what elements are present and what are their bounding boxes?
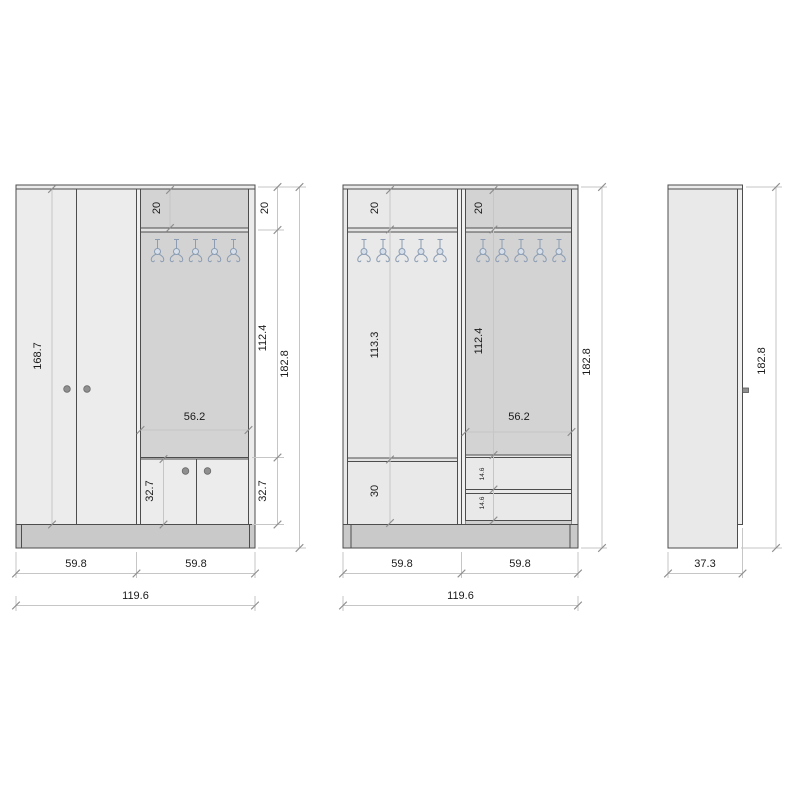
door-handle-knob <box>182 468 189 475</box>
side-panel-body <box>668 189 738 548</box>
door-handle-knob <box>204 468 211 475</box>
dimension-label: 119.6 <box>122 590 149 602</box>
door-handle-knob <box>84 386 91 393</box>
dimension-label: 14.6 <box>479 467 486 480</box>
dimension-label: 59.8 <box>509 558 530 570</box>
top-shelf-right <box>466 228 572 232</box>
dimension-label: 168.7 <box>32 342 44 370</box>
dimension-label: 112.4 <box>473 328 485 355</box>
dimension-label: 182.8 <box>581 348 593 376</box>
dimension-label: 113.3 <box>369 332 381 359</box>
technical-drawing-canvas: 168.72020112.456.232.732.7182.859.859.81… <box>0 0 800 800</box>
center-partition <box>137 189 141 548</box>
dimension-label: 30 <box>369 485 381 497</box>
door-handle-side <box>743 388 749 393</box>
lower-shelf-left <box>348 458 458 462</box>
dimension-label: 20 <box>151 202 163 214</box>
dimension-label: 59.8 <box>185 558 206 570</box>
dimension-label: 56.2 <box>184 411 205 423</box>
dimension-label: 112.4 <box>257 325 269 352</box>
dimension-label: 20 <box>259 202 271 214</box>
dimension-label: 119.6 <box>447 590 474 602</box>
dimension-label: 32.7 <box>144 480 156 501</box>
dimension-label: 14.6 <box>479 496 486 509</box>
dimension-label: 59.8 <box>65 558 86 570</box>
side-view <box>668 185 749 548</box>
wardrobe-dimension-drawing: 168.72020112.456.232.732.7182.859.859.81… <box>0 0 800 800</box>
door-handle-knob <box>64 386 71 393</box>
dimension-label: 182.8 <box>279 350 291 378</box>
dimension-label: 20 <box>369 202 381 214</box>
dimension-label: 32.7 <box>257 480 269 501</box>
under-drawer-band <box>466 521 572 525</box>
top-shelf-left <box>348 228 458 232</box>
plinth <box>16 525 255 549</box>
door-edge-strip <box>738 189 743 525</box>
dimension-label: 182.8 <box>756 347 768 375</box>
dimension-label: 59.8 <box>391 558 412 570</box>
lower-doors-section <box>141 459 249 525</box>
top-panel <box>668 185 743 189</box>
top-shelf <box>141 228 249 232</box>
dimension-label: 37.3 <box>694 558 715 570</box>
dimension-label: 56.2 <box>508 411 529 423</box>
dimension-label: 20 <box>473 202 485 214</box>
plinth <box>343 525 578 549</box>
